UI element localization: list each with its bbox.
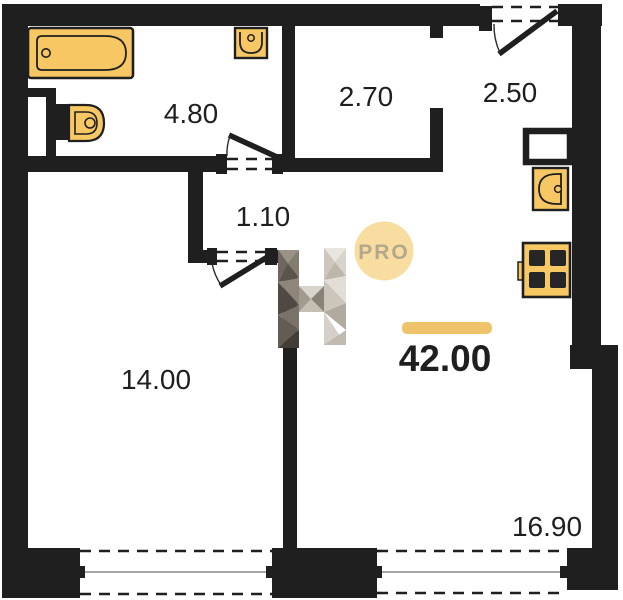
floor-plan: PRO 4.80 2.70 2.50 1.10 14.00 16.90 42.0… bbox=[0, 0, 623, 600]
label-wardrobe-area: 2.70 bbox=[339, 81, 394, 112]
bathroom-bottom-wall bbox=[2, 156, 216, 172]
bathroom-door-leaf bbox=[229, 135, 277, 157]
label-entry-area: 2.50 bbox=[483, 77, 538, 108]
window-2-left-anchor bbox=[373, 566, 382, 578]
wall-bottom-right-block bbox=[567, 548, 618, 590]
window-1-right-anchor bbox=[266, 566, 275, 578]
floor-plan-canvas: PRO 4.80 2.70 2.50 1.10 14.00 16.90 42.0… bbox=[0, 0, 623, 600]
hall-door-left-jamb bbox=[207, 248, 217, 265]
pro-badge-watermark: PRO bbox=[355, 222, 414, 281]
wardrobe-right-wall bbox=[430, 108, 443, 172]
kitchen-sink-icon bbox=[533, 168, 568, 210]
label-bathroom-area: 4.80 bbox=[164, 98, 219, 129]
label-hall-area: 1.10 bbox=[236, 201, 291, 232]
bathroom-door bbox=[227, 135, 277, 169]
wall-top bbox=[2, 4, 480, 26]
room-labels: 4.80 2.70 2.50 1.10 14.00 16.90 bbox=[121, 77, 582, 542]
wall-bottom-middle-block bbox=[272, 548, 377, 598]
toilet-drain bbox=[85, 118, 95, 128]
wardrobe-left-wall bbox=[282, 26, 295, 172]
entry-door-leaf bbox=[499, 11, 557, 54]
total-area-group: 42.00 bbox=[399, 322, 492, 379]
stove-burner-1 bbox=[529, 250, 545, 266]
bathroom-niche-wall bbox=[46, 88, 56, 156]
bathtub-icon bbox=[28, 28, 133, 78]
window-2 bbox=[373, 551, 569, 593]
kitchen-sink-faucet bbox=[555, 186, 562, 193]
wall-right-upper bbox=[572, 4, 601, 349]
stove-burner-2 bbox=[550, 250, 566, 266]
label-bedroom-area: 14.00 bbox=[121, 364, 191, 395]
washbasin-faucet bbox=[248, 35, 254, 41]
wall-left bbox=[2, 4, 28, 598]
hall-door bbox=[212, 252, 269, 286]
washbasin-icon bbox=[235, 28, 267, 58]
hall-door-swing-arc bbox=[212, 263, 221, 285]
window-1-left-anchor bbox=[76, 566, 85, 578]
window-1 bbox=[76, 551, 275, 594]
hall-left-wall bbox=[188, 172, 203, 263]
h-logo-watermark bbox=[278, 248, 346, 348]
duct-shaft bbox=[526, 131, 570, 162]
stove-icon bbox=[518, 243, 570, 297]
entry-door-left-jamb bbox=[479, 6, 492, 31]
wardrobe-bottom-wall bbox=[282, 158, 443, 172]
wardrobe-right-nib bbox=[430, 26, 443, 38]
bathtub-drain bbox=[42, 49, 50, 57]
toilet-icon bbox=[56, 104, 104, 141]
stove-burner-4 bbox=[550, 272, 566, 288]
label-living-kitchen-area: 16.90 bbox=[512, 511, 582, 542]
bathroom-door-swing-arc bbox=[227, 136, 230, 156]
stove-burner-3 bbox=[529, 272, 545, 288]
window-2-right-anchor bbox=[560, 566, 569, 578]
total-area-accent-bar bbox=[402, 322, 492, 334]
pro-badge-text: PRO bbox=[358, 241, 410, 264]
bathroom-door-left-jamb bbox=[216, 154, 227, 174]
label-total-area: 42.00 bbox=[399, 338, 492, 379]
entry-door bbox=[492, 7, 558, 54]
wall-bottom-left-block bbox=[2, 548, 80, 598]
duct-shaft-box bbox=[526, 131, 570, 162]
entry-door-swing-arc bbox=[494, 24, 500, 53]
